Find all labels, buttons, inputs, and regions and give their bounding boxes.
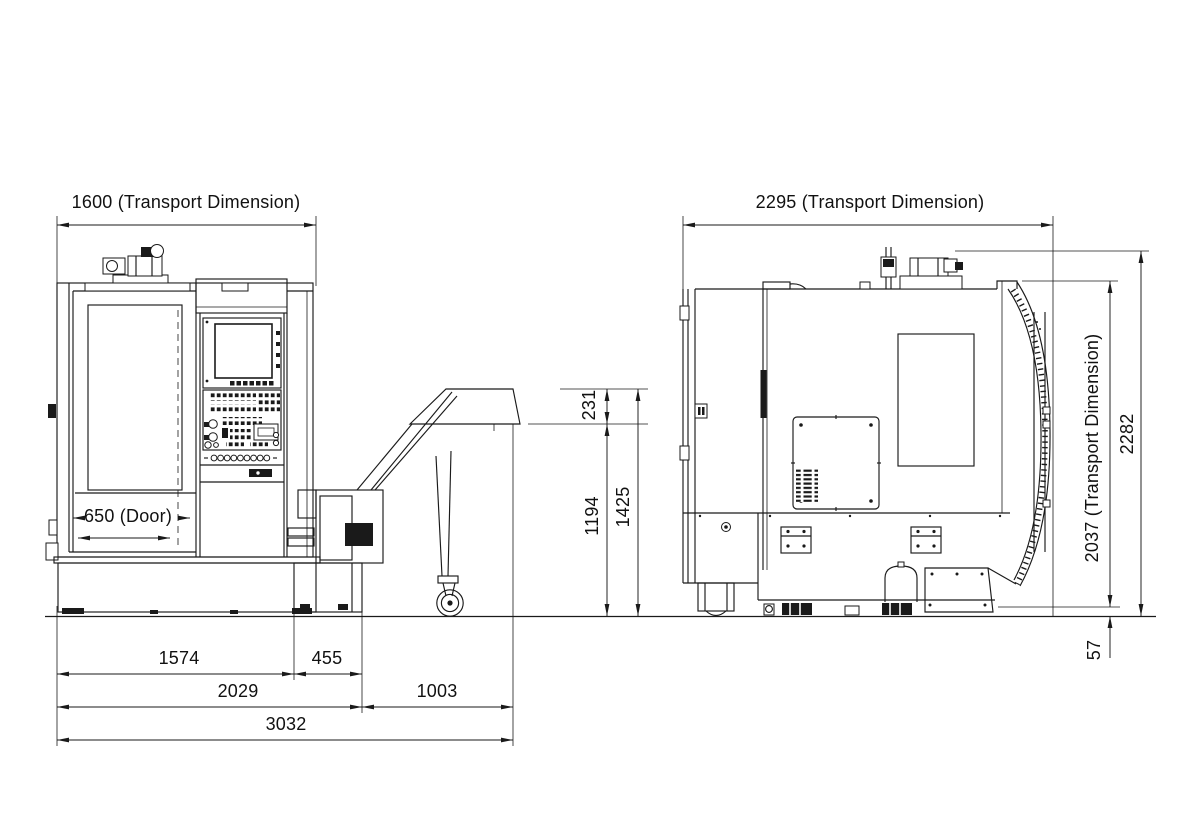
front-base	[58, 563, 316, 612]
latch	[695, 404, 707, 418]
dim-front-1574: 1574	[159, 649, 200, 667]
dim-front-door-width: 650 (Door)	[84, 507, 172, 525]
side-access-panel	[791, 415, 881, 511]
ventilation-grid	[796, 468, 818, 502]
front-chip-conveyor	[288, 389, 520, 616]
front-view	[46, 245, 520, 617]
conveyor-discharge	[410, 389, 520, 424]
dimension-lines	[57, 216, 1149, 746]
dim-side-overall-height: 2282	[1118, 414, 1136, 455]
dim-side-skid-height: 57	[1085, 640, 1103, 660]
door-window	[88, 305, 182, 490]
softkey-row	[230, 381, 274, 386]
dim-front-455: 455	[312, 649, 343, 667]
dim-front-1425: 1425	[614, 487, 632, 528]
hinge	[680, 446, 689, 460]
technical-drawing-page: 1600 (Transport Dimension) 650 (Door) 23…	[0, 0, 1200, 838]
dim-front-231: 231	[580, 390, 598, 421]
side-top-motor	[860, 247, 963, 289]
hinge	[680, 306, 689, 320]
arch-cover	[885, 566, 917, 602]
side-base	[698, 562, 1016, 616]
crt-screen	[215, 324, 272, 378]
side-view	[680, 247, 1050, 616]
side-foot	[698, 583, 734, 611]
side-back-panel	[680, 289, 758, 583]
dim-front-transport-width: 1600 (Transport Dimension)	[72, 193, 301, 211]
conveyor-leg	[436, 451, 458, 596]
caster-wheel	[437, 590, 463, 616]
dim-front-1003: 1003	[417, 682, 458, 700]
dim-side-transport-height: 2037 (Transport Dimension)	[1083, 334, 1101, 563]
dim-front-2029: 2029	[218, 682, 259, 700]
dim-side-transport-depth: 2295 (Transport Dimension)	[756, 193, 985, 211]
side-mounting-pads	[781, 527, 941, 553]
dim-front-3032: 3032	[266, 715, 307, 733]
side-curved-cover	[1008, 282, 1050, 586]
side-window-panel	[898, 334, 974, 466]
drawing-canvas	[0, 0, 1200, 838]
front-top-motor	[103, 245, 168, 284]
door-handle	[761, 370, 767, 418]
dim-front-1194: 1194	[583, 496, 601, 536]
side-body	[683, 281, 1017, 600]
front-control-pendant	[196, 279, 287, 557]
round-button-row	[204, 455, 277, 461]
front-base-flange	[54, 557, 320, 563]
